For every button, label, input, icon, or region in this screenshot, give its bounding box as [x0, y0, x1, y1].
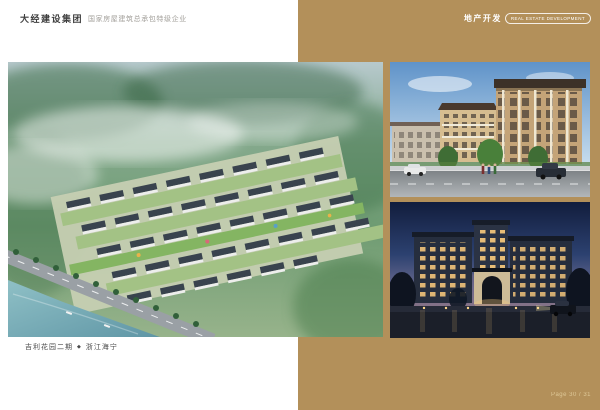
project-name: 吉利花园二期 [25, 342, 73, 352]
street-daytime-image [390, 62, 590, 197]
dusk-rendering-image [390, 202, 590, 338]
pedestrians [482, 164, 497, 175]
street-daytime-rendering-photo [390, 62, 590, 197]
company-tagline: 国家房屋建筑总承包特级企业 [88, 14, 187, 24]
page-number: Page 30 / 31 [551, 392, 591, 398]
brochure-page: 大经建设集团 国家房屋建筑总承包特级企业 地产开发 REAL ESTATE DE… [0, 0, 600, 410]
section-title-en-pill: REAL ESTATE DEVELOPMENT [505, 13, 591, 24]
aerial-site-rendering-photo [8, 62, 383, 337]
company-name: 大经建设集团 [20, 12, 83, 25]
section-header: 地产开发 REAL ESTATE DEVELOPMENT [464, 13, 591, 24]
project-caption: 吉利花园二期 ◆ 浙江海宁 [25, 342, 118, 352]
aerial-rendering-image [8, 62, 383, 337]
caption-separator-icon: ◆ [77, 344, 82, 350]
section-title-cn: 地产开发 [464, 13, 502, 24]
project-location: 浙江海宁 [86, 342, 118, 352]
dusk-entrance-rendering-photo [390, 202, 590, 338]
